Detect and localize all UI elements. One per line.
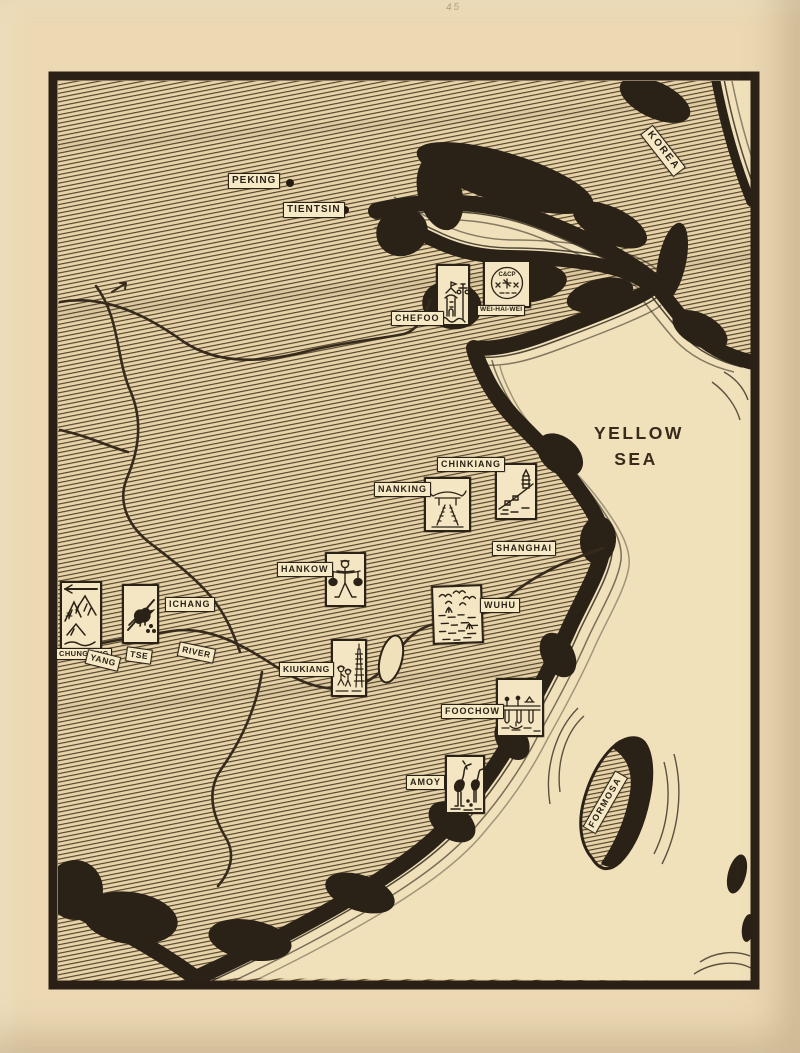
label-shanghai: SHANGHAI: [492, 541, 556, 556]
label-foochow: FOOCHOW: [441, 704, 504, 719]
stamp-ichang: [122, 584, 159, 644]
yellow-sea-line1: YELLOW: [594, 420, 678, 446]
map-page: C&CP: [0, 0, 800, 1053]
label-chinkiang: CHINKIANG: [437, 457, 505, 472]
yellow-sea-name: YELLOW SEA: [594, 420, 678, 473]
seal-text: C&CP: [498, 272, 515, 278]
stamp-kiukiang: [331, 639, 367, 697]
stamp-chungking: [60, 581, 102, 651]
label-ichang: ICHANG: [165, 597, 215, 612]
bridge-scene-illustration: [498, 680, 542, 735]
stamp-wei-hai-wei: C&CP: [483, 260, 531, 308]
gorge-mountains-upriver-arrow-illustration: [62, 583, 100, 649]
label-kiukiang: KIUKIANG: [279, 662, 334, 677]
peking-city-dot: [286, 179, 294, 187]
seal-emblem-illustration: C&CP: [485, 262, 529, 306]
label-chefoo: CHEFOO: [391, 311, 444, 326]
china-coast-map-illustration: [0, 0, 800, 1053]
flying-ducks-marsh-illustration: [433, 586, 482, 643]
label-hankow: HANKOW: [277, 562, 333, 577]
pencil-note: 45: [446, 1, 462, 13]
porter-carrying-baskets-illustration: [327, 554, 364, 605]
label-tientsin: TIENTSIN: [283, 202, 345, 218]
label-amoy: AMOY: [406, 775, 445, 790]
stamp-wuhu: [431, 584, 484, 645]
stamp-hankow: [325, 552, 366, 607]
label-nanking: NANKING: [374, 482, 431, 497]
hill-tower-illustration: [497, 465, 535, 518]
two-egrets-illustration: [447, 757, 483, 812]
memorial-gate-avenue-illustration: [426, 479, 469, 530]
bird-on-branch-illustration: [124, 586, 157, 642]
label-wei-hai-wei: WEI-HAI-WEI: [477, 305, 525, 316]
stamp-nanking: [424, 477, 471, 532]
stamp-amoy: [445, 755, 485, 814]
label-wuhu: WUHU: [480, 598, 520, 613]
yellow-sea-line2: SEA: [594, 446, 678, 472]
label-peking: PEKING: [228, 173, 280, 189]
figures-and-pagoda-illustration: [333, 641, 365, 695]
